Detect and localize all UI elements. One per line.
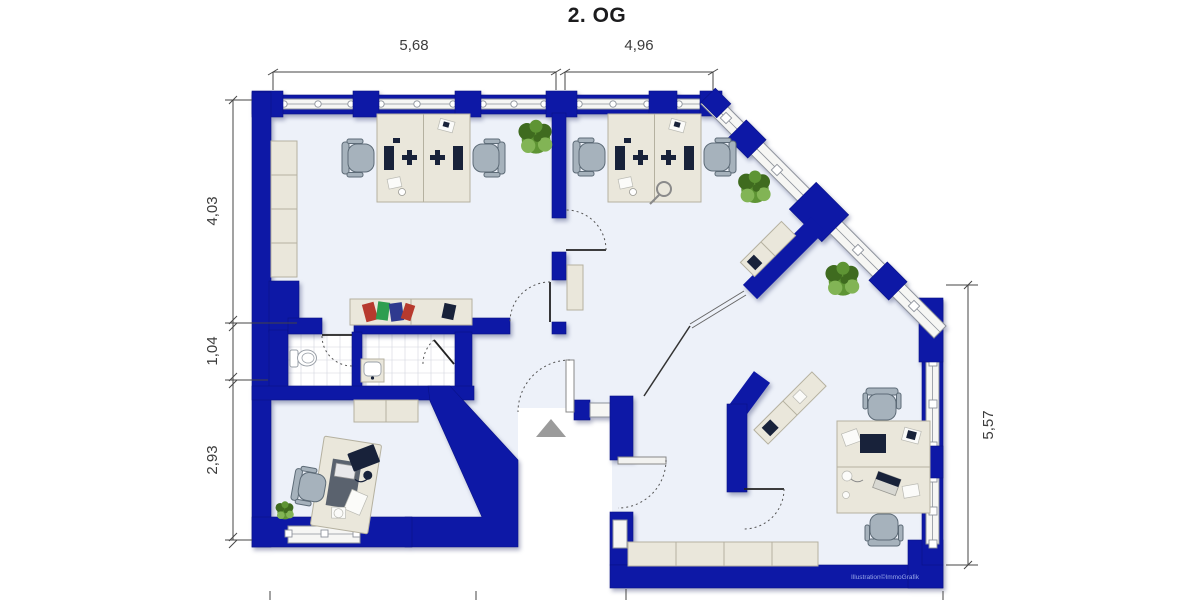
entrance-door-leaf bbox=[566, 360, 574, 412]
dimension-label-left-2: 1,04 bbox=[204, 336, 221, 365]
office-chair bbox=[704, 138, 736, 176]
hall-sideboard bbox=[354, 400, 418, 422]
plant-icon bbox=[276, 501, 294, 519]
office-chair bbox=[865, 514, 903, 546]
office-chair bbox=[573, 138, 605, 176]
cabinet bbox=[567, 265, 583, 310]
office-chair bbox=[863, 388, 901, 420]
dimension-label-top-2: 4,96 bbox=[624, 37, 653, 54]
page-title: 2. OG bbox=[568, 4, 627, 27]
office4-sideboard bbox=[628, 542, 818, 566]
dimension-label-left-1: 4,03 bbox=[204, 196, 221, 225]
dimension-label-top-1: 5,68 bbox=[399, 37, 428, 54]
floor-plan: 2. OG 5,68 4,96 4,03 1,04 2,93 5,57 Illu… bbox=[0, 0, 1200, 600]
plant-icon bbox=[518, 120, 552, 154]
watermark: Illustration©ImmoGrafik bbox=[851, 573, 920, 581]
toilet bbox=[290, 350, 317, 367]
plant-icon bbox=[825, 262, 859, 296]
sink bbox=[361, 359, 384, 382]
entrance-arrow-icon bbox=[536, 419, 566, 437]
office-chair bbox=[342, 139, 374, 177]
plant-icon bbox=[738, 171, 771, 204]
dimension-label-left-3: 2,93 bbox=[204, 445, 221, 474]
office4-desks bbox=[837, 421, 930, 513]
office1-sideboard bbox=[350, 299, 472, 325]
office-chair bbox=[473, 139, 505, 177]
floor-plan-canvas: 2. OG 5,68 4,96 4,03 1,04 2,93 5,57 Illu… bbox=[0, 0, 1200, 600]
dimension-label-right-1: 5,57 bbox=[980, 410, 997, 439]
